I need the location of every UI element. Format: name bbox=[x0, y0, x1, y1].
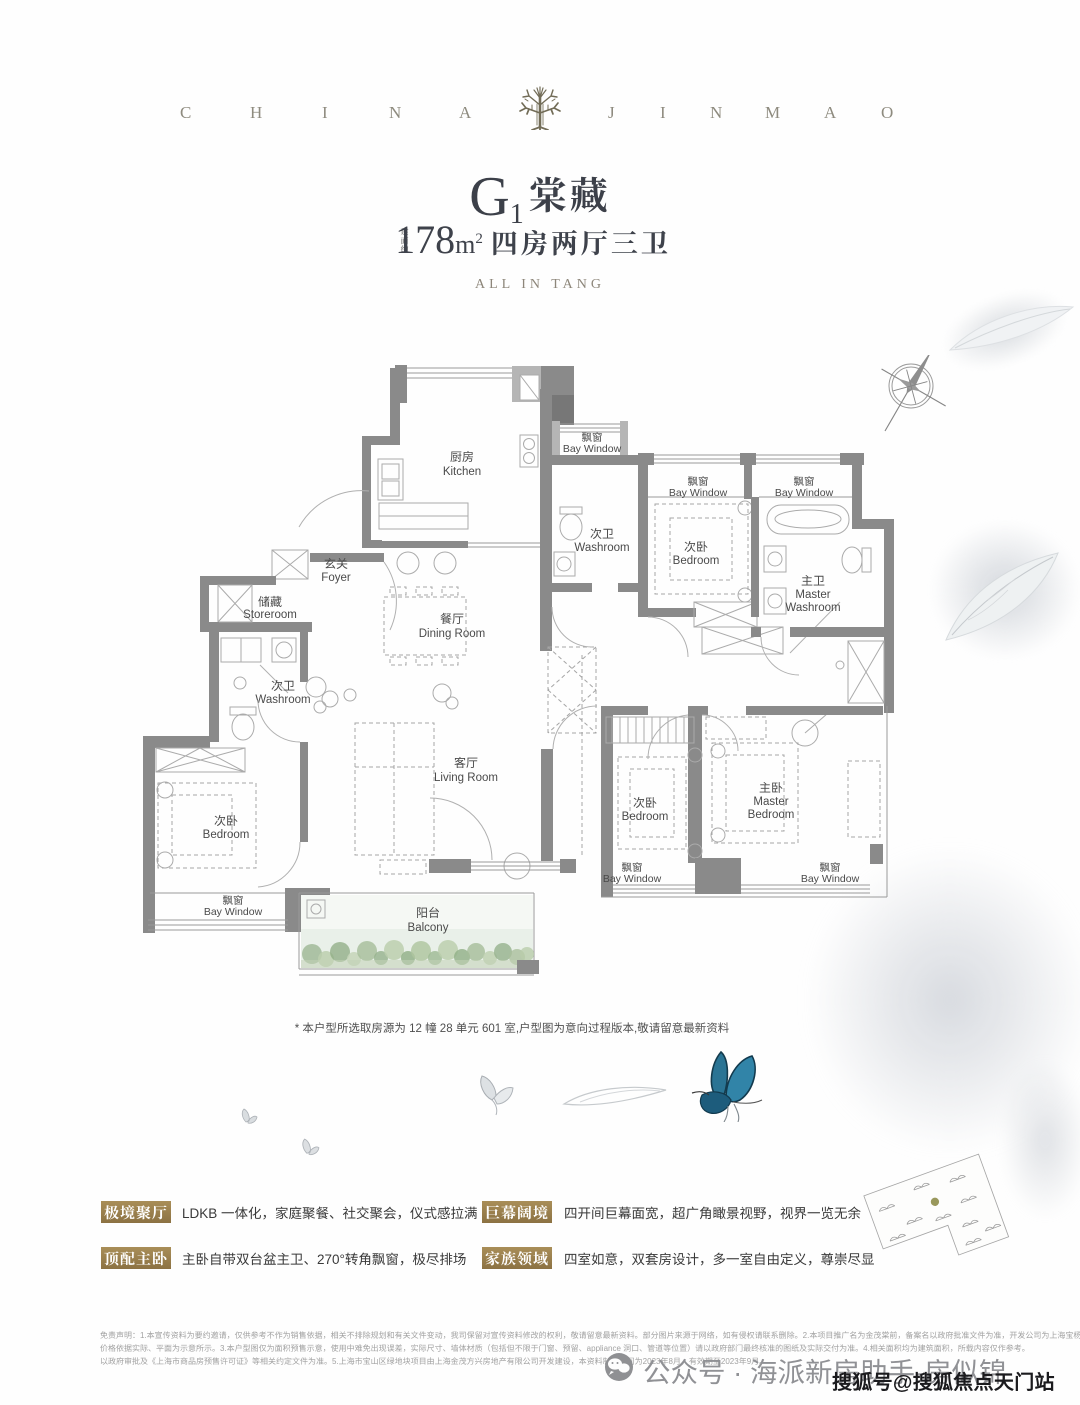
svg-text:Bedroom: Bedroom bbox=[203, 829, 250, 841]
svg-text:Living Room: Living Room bbox=[434, 772, 498, 784]
svg-text:Master: Master bbox=[795, 589, 830, 601]
svg-text:Bay Window: Bay Window bbox=[669, 487, 728, 499]
svg-text:次卧: 次卧 bbox=[633, 794, 657, 811]
svg-text:Balcony: Balcony bbox=[408, 922, 449, 934]
svg-text:玄关: 玄关 bbox=[324, 555, 348, 572]
svg-text:次卧: 次卧 bbox=[214, 812, 238, 829]
svg-text:Kitchen: Kitchen bbox=[443, 466, 481, 478]
svg-text:Washroom: Washroom bbox=[255, 694, 310, 706]
svg-text:次卫: 次卫 bbox=[590, 525, 614, 542]
svg-text:厨房: 厨房 bbox=[450, 448, 474, 465]
svg-text:Bedroom: Bedroom bbox=[748, 809, 795, 821]
svg-text:Bay Window: Bay Window bbox=[603, 873, 662, 885]
svg-text:Bedroom: Bedroom bbox=[622, 811, 669, 823]
svg-text:餐厅: 餐厅 bbox=[440, 610, 464, 627]
svg-text:Washroom: Washroom bbox=[574, 542, 629, 554]
svg-text:Bay Window: Bay Window bbox=[204, 906, 263, 918]
svg-text:主卧: 主卧 bbox=[759, 779, 783, 796]
svg-text:Dining Room: Dining Room bbox=[419, 628, 485, 640]
svg-text:次卧: 次卧 bbox=[684, 538, 708, 555]
svg-text:客厅: 客厅 bbox=[454, 754, 478, 771]
svg-text:Bedroom: Bedroom bbox=[673, 555, 720, 567]
svg-text:阳台: 阳台 bbox=[416, 904, 440, 921]
svg-text:Master: Master bbox=[753, 796, 788, 808]
svg-text:Bay Window: Bay Window bbox=[775, 487, 834, 499]
svg-text:次卫: 次卫 bbox=[271, 677, 295, 694]
svg-text:Washroom: Washroom bbox=[785, 602, 840, 614]
svg-text:主卫: 主卫 bbox=[801, 572, 825, 589]
svg-text:Bay Window: Bay Window bbox=[563, 443, 622, 455]
svg-text:Storeroom: Storeroom bbox=[243, 609, 297, 621]
svg-text:Bay Window: Bay Window bbox=[801, 873, 860, 885]
svg-text:储藏: 储藏 bbox=[258, 593, 282, 610]
svg-text:Foyer: Foyer bbox=[321, 572, 351, 584]
